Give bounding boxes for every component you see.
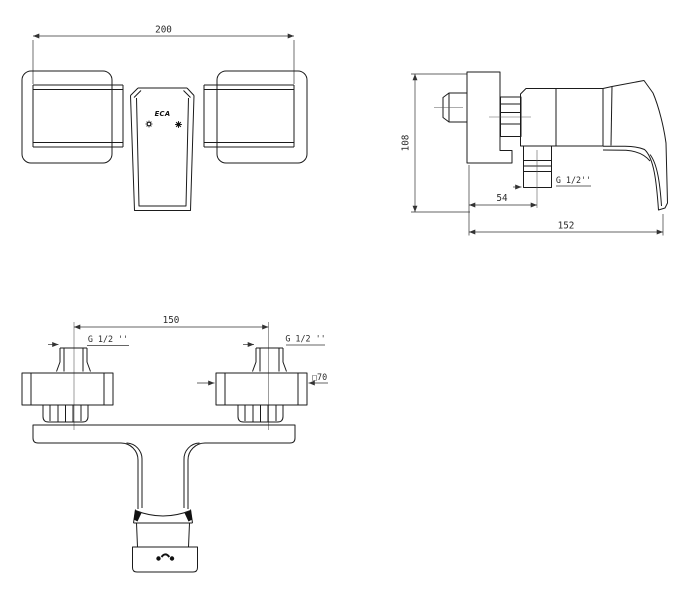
technical-drawing: 200 ECA bbox=[0, 0, 691, 600]
thread-label-right: G 1/2 '' bbox=[243, 334, 326, 346]
hot-indicator-icon bbox=[175, 121, 182, 128]
depth-dim-label: 152 bbox=[558, 221, 575, 232]
dimension-height-108: 108 bbox=[401, 74, 471, 212]
side-view: 108 bbox=[401, 72, 668, 236]
wall-plate-side bbox=[467, 72, 512, 163]
front-view: 200 ECA bbox=[22, 25, 307, 211]
mixer-handle-front: ECA bbox=[131, 88, 195, 211]
union-nut-side bbox=[489, 97, 531, 137]
offset-dim-label: 54 bbox=[496, 193, 508, 204]
top-view: 150 G 1/2 '' G 1/2 '' □70 bbox=[22, 315, 328, 572]
outlet-thread-text: G 1/2'' bbox=[556, 175, 591, 185]
centers-dim-label: 150 bbox=[163, 315, 180, 326]
thread-left-text: G 1/2 '' bbox=[88, 334, 128, 344]
brand-logo: ECA bbox=[155, 110, 171, 118]
width-dim-label: 200 bbox=[155, 25, 172, 36]
height-dim-label: 108 bbox=[401, 135, 412, 152]
brand-mark-knob-icon bbox=[156, 554, 174, 560]
outlet-thread-label: G 1/2'' bbox=[513, 175, 591, 187]
dimension-centers-150: 150 bbox=[74, 315, 269, 327]
supply-connector-side bbox=[434, 93, 467, 122]
handle-knob-top bbox=[133, 510, 198, 573]
mixer-body-top bbox=[33, 425, 295, 509]
thread-right-text: G 1/2 '' bbox=[285, 334, 325, 344]
lever-handle-side bbox=[603, 81, 668, 211]
escutcheon-size-text: □70 bbox=[312, 372, 327, 382]
supply-connector-top-left bbox=[22, 348, 113, 422]
supply-connector-top-right bbox=[216, 348, 307, 422]
escutcheon-size-label: □70 bbox=[197, 372, 328, 383]
drawing-canvas: 200 ECA bbox=[0, 0, 691, 600]
dimension-offset-54: 54 bbox=[469, 193, 537, 205]
cold-indicator-icon bbox=[146, 121, 153, 128]
outlet-side bbox=[524, 146, 552, 208]
valve-body-side bbox=[521, 89, 604, 147]
dimension-width-200: 200 bbox=[33, 25, 294, 85]
thread-label-left: G 1/2 '' bbox=[48, 334, 129, 346]
